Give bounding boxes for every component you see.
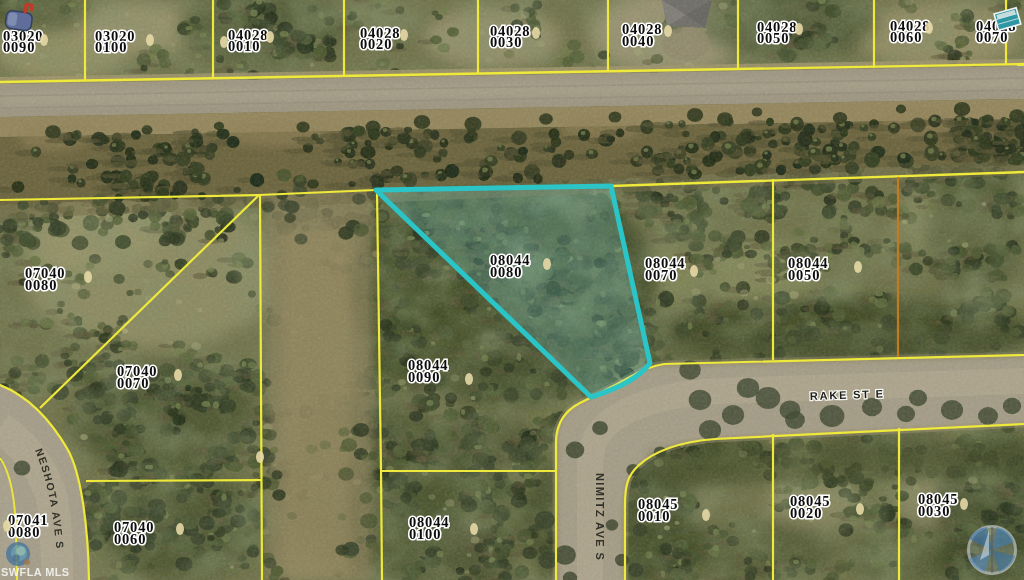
svg-text:0010: 0010: [228, 38, 260, 54]
svg-text:0060: 0060: [114, 531, 146, 547]
svg-text:0030: 0030: [490, 34, 522, 50]
svg-text:0080: 0080: [25, 277, 57, 293]
svg-text:0020: 0020: [790, 505, 822, 521]
svg-text:0030: 0030: [918, 503, 950, 519]
svg-text:0010: 0010: [638, 508, 670, 524]
svg-text:0060: 0060: [890, 29, 922, 45]
svg-text:0080: 0080: [490, 264, 522, 280]
svg-text:0070: 0070: [976, 29, 1008, 45]
svg-text:0100: 0100: [409, 526, 441, 542]
svg-text:0020: 0020: [360, 36, 392, 52]
svg-text:0040: 0040: [622, 33, 654, 49]
svg-text:0070: 0070: [645, 267, 677, 283]
svg-text:0100: 0100: [95, 39, 127, 55]
svg-text:0050: 0050: [757, 30, 789, 46]
svg-text:0080: 0080: [8, 524, 40, 540]
svg-text:SWFLA MLS: SWFLA MLS: [1, 566, 70, 578]
svg-text:NIMITZ AVE S: NIMITZ AVE S: [594, 473, 606, 561]
svg-text:0050: 0050: [788, 267, 820, 283]
svg-text:0090: 0090: [3, 39, 35, 55]
svg-text:0090: 0090: [408, 369, 440, 385]
svg-text:0070: 0070: [117, 375, 149, 391]
